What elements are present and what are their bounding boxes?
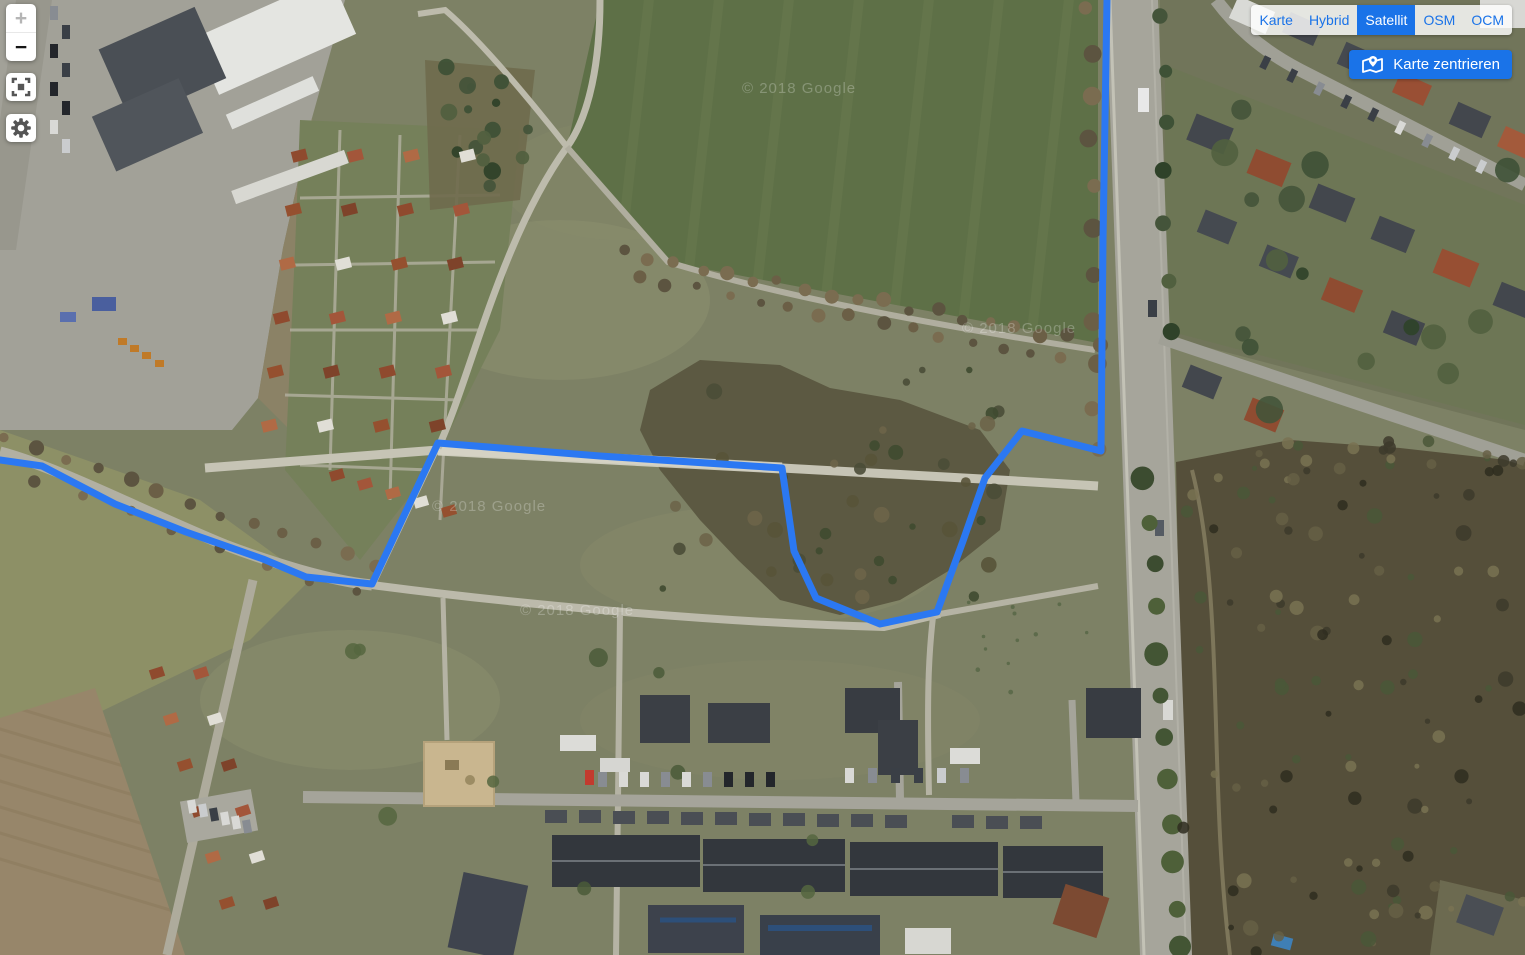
gear-icon	[10, 117, 32, 139]
zoom-in-button[interactable]: +	[6, 4, 36, 33]
layer-button-satellit[interactable]: Satellit	[1357, 5, 1415, 35]
minus-icon: −	[15, 37, 27, 58]
map-canvas[interactable]: © 2018 Google © 2018 Google © 2018 Googl…	[0, 0, 1525, 955]
watermark: © 2018 Google	[520, 602, 634, 619]
layer-button-osm[interactable]: OSM	[1415, 5, 1463, 35]
zoom-control: + −	[6, 4, 36, 61]
layer-switcher: Karte Hybrid Satellit OSM OCM	[1251, 5, 1512, 35]
map-pin-icon	[1361, 55, 1385, 75]
watermark: © 2018 Google	[432, 498, 546, 515]
layer-button-karte[interactable]: Karte	[1251, 5, 1300, 35]
center-map-button[interactable]: Karte zentrieren	[1349, 50, 1512, 79]
zoom-out-button[interactable]: −	[6, 33, 36, 61]
center-map-label: Karte zentrieren	[1393, 56, 1500, 73]
settings-button[interactable]	[6, 114, 36, 142]
layer-button-hybrid[interactable]: Hybrid	[1301, 5, 1357, 35]
watermark: © 2018 Google	[742, 80, 856, 97]
map-viewer: © 2018 Google © 2018 Google © 2018 Googl…	[0, 0, 1525, 955]
layer-button-ocm[interactable]: OCM	[1463, 5, 1512, 35]
fit-track-icon	[11, 77, 31, 97]
watermark: © 2018 Google	[962, 320, 1076, 337]
plus-icon: +	[15, 8, 27, 29]
fit-track-button[interactable]	[6, 73, 36, 101]
